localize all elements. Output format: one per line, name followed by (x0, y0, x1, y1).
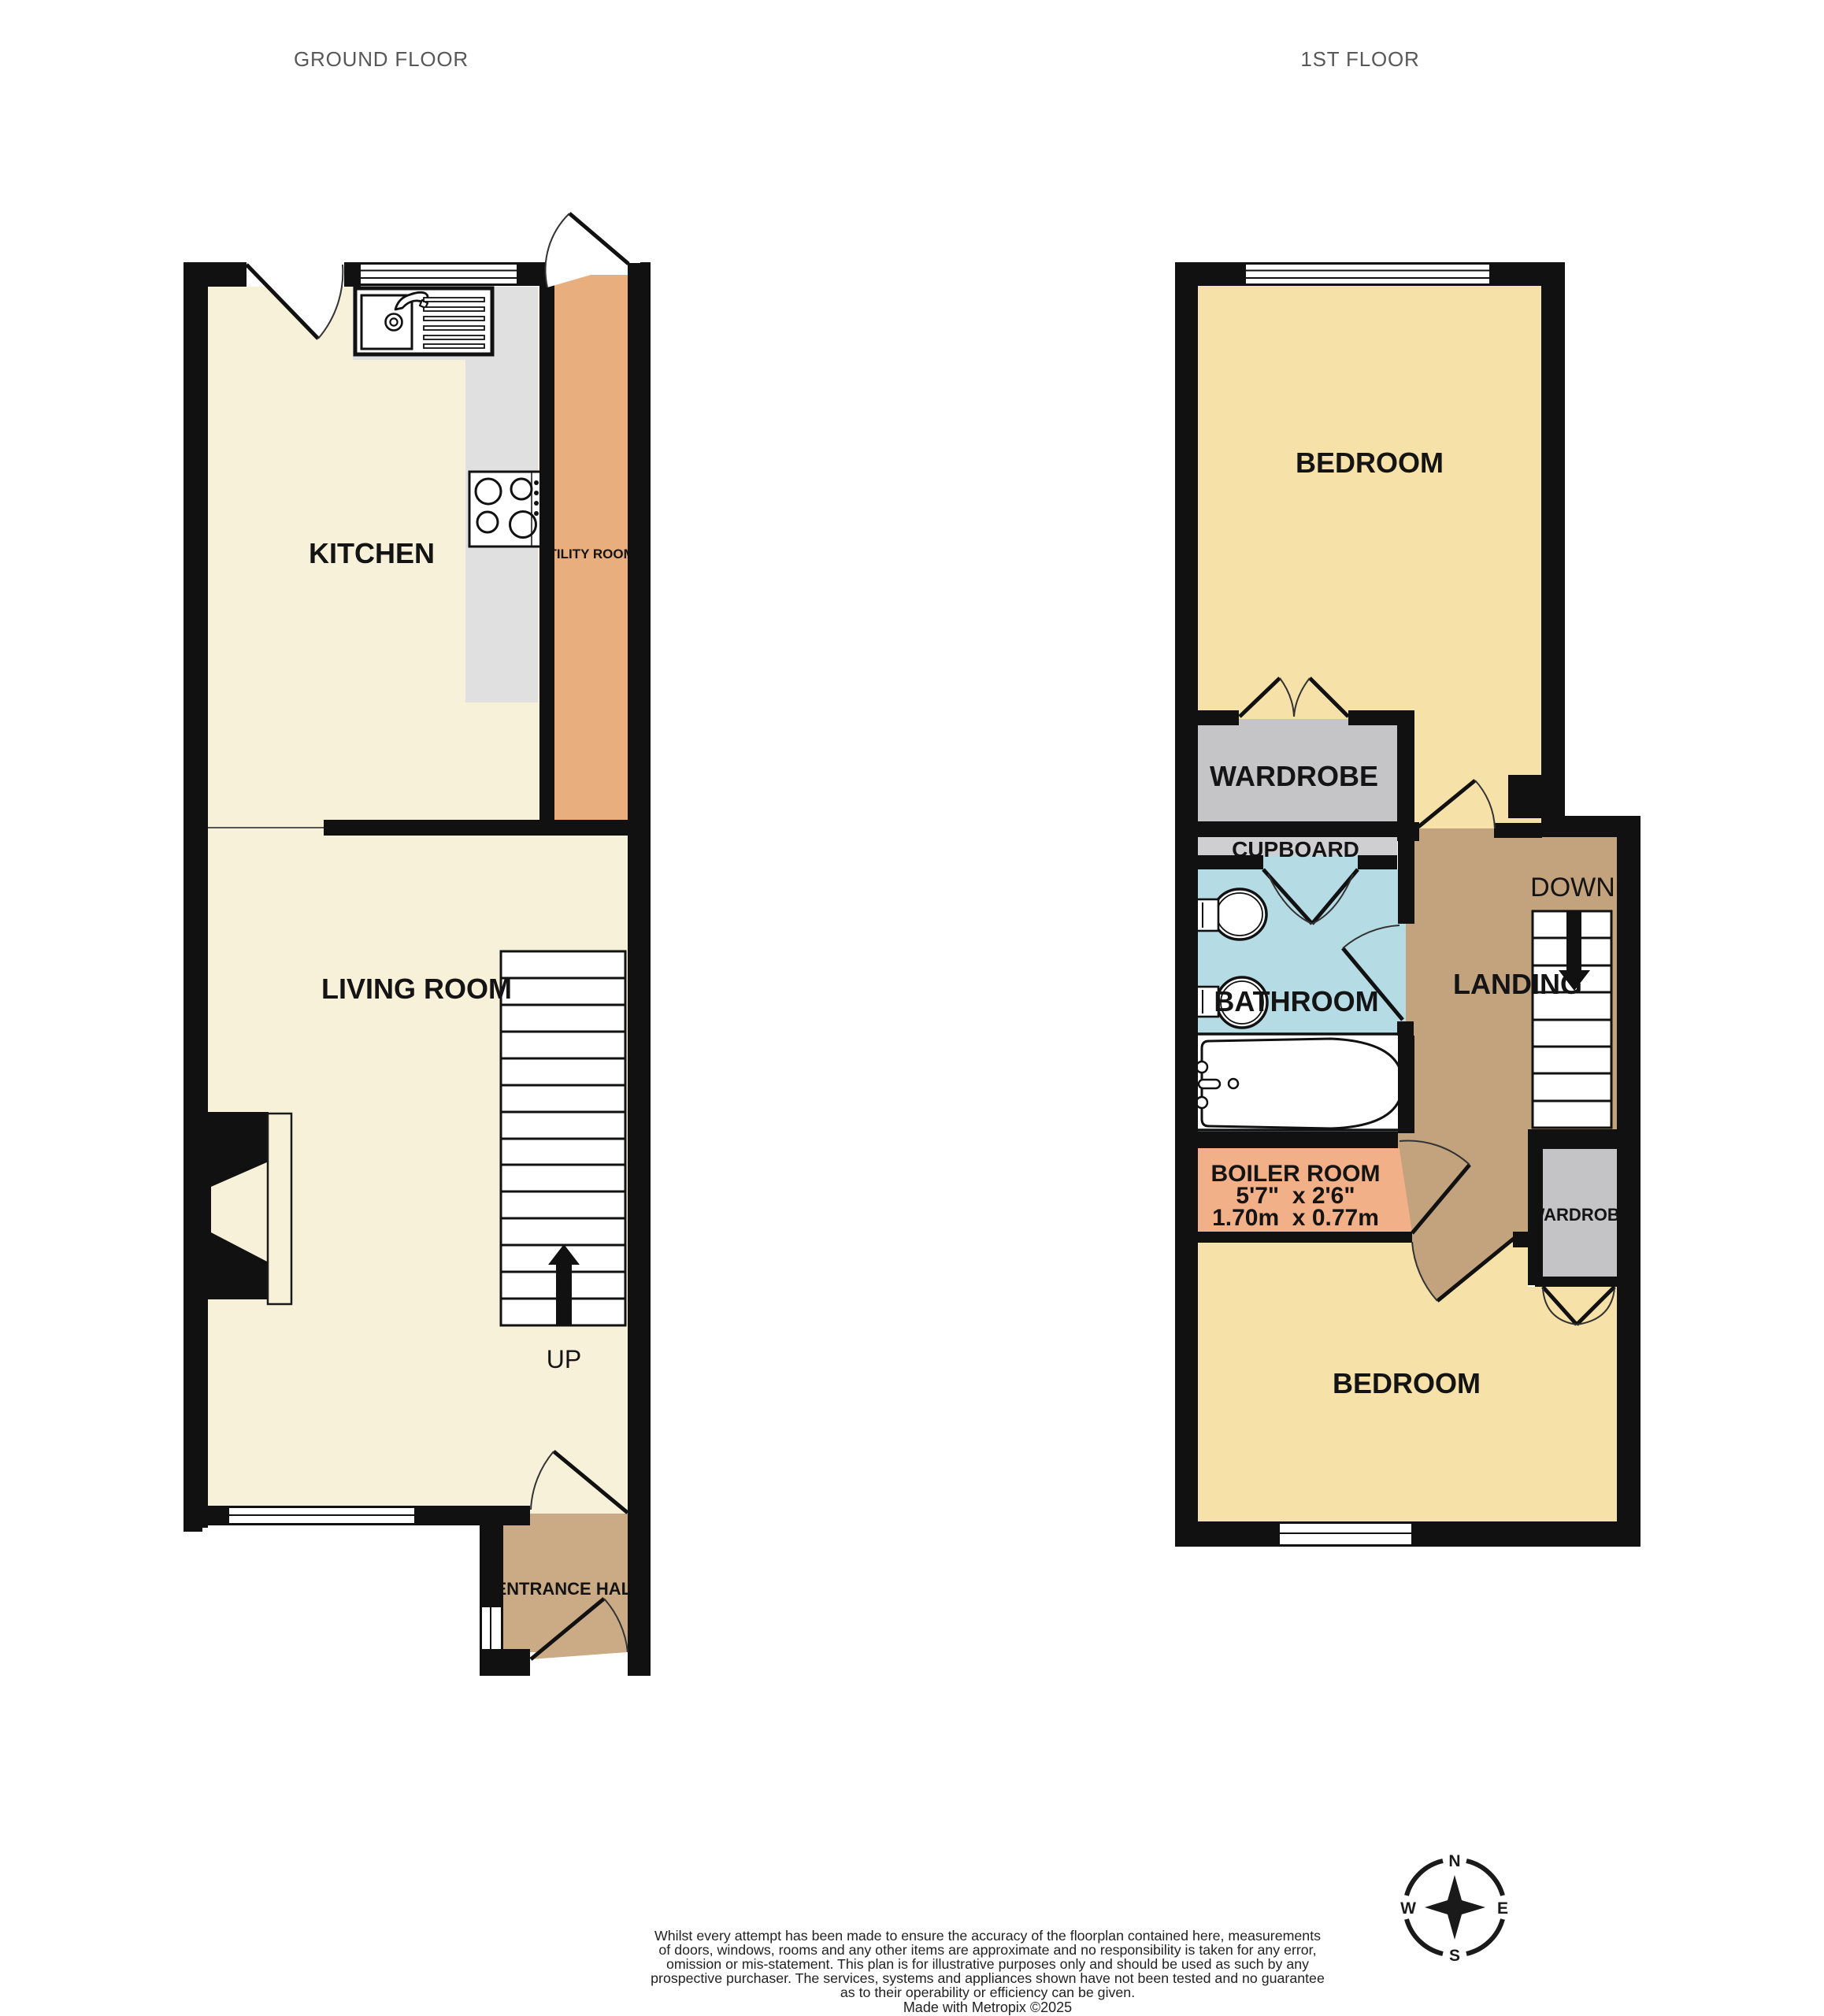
svg-text:BATHROOM: BATHROOM (1214, 985, 1378, 1017)
svg-text:BEDROOM: BEDROOM (1333, 1367, 1481, 1399)
svg-text:GROUND FLOOR: GROUND FLOOR (294, 47, 469, 71)
svg-text:BEDROOM: BEDROOM (1296, 447, 1444, 479)
svg-text:KITCHEN: KITCHEN (309, 537, 435, 569)
svg-text:S: S (1449, 1947, 1460, 1965)
svg-text:of doors, windows, rooms and a: of doors, windows, rooms and any other i… (658, 1942, 1316, 1958)
svg-text:as to their operability or eff: as to their operability or efficiency ca… (840, 1984, 1135, 2000)
svg-text:W: W (1400, 1899, 1416, 1918)
svg-text:1ST FLOOR: 1ST FLOOR (1300, 47, 1419, 71)
svg-text:LIVING ROOM: LIVING ROOM (321, 973, 512, 1005)
svg-text:omission or mis-statement. Thi: omission or mis-statement. This plan is … (666, 1956, 1309, 1972)
svg-text:Made with Metropix ©2025: Made with Metropix ©2025 (903, 1999, 1072, 2015)
svg-text:WARDROBE: WARDROBE (1210, 760, 1378, 792)
svg-text:N: N (1448, 1852, 1460, 1870)
svg-text:prospective purchaser. The ser: prospective purchaser. The services, sys… (651, 1970, 1325, 1986)
svg-text:E: E (1497, 1899, 1508, 1918)
svg-text:1.70m x 0.77m: 1.70m x 0.77m (1212, 1205, 1379, 1231)
svg-text:WARDROBE: WARDROBE (1529, 1205, 1632, 1225)
svg-text:ENTRANCE HALL: ENTRANCE HALL (495, 1579, 643, 1599)
svg-text:UP: UP (547, 1345, 581, 1373)
svg-text:Whilst every attempt has been: Whilst every attempt has been made to en… (654, 1928, 1321, 1944)
svg-text:DOWN: DOWN (1530, 873, 1615, 902)
